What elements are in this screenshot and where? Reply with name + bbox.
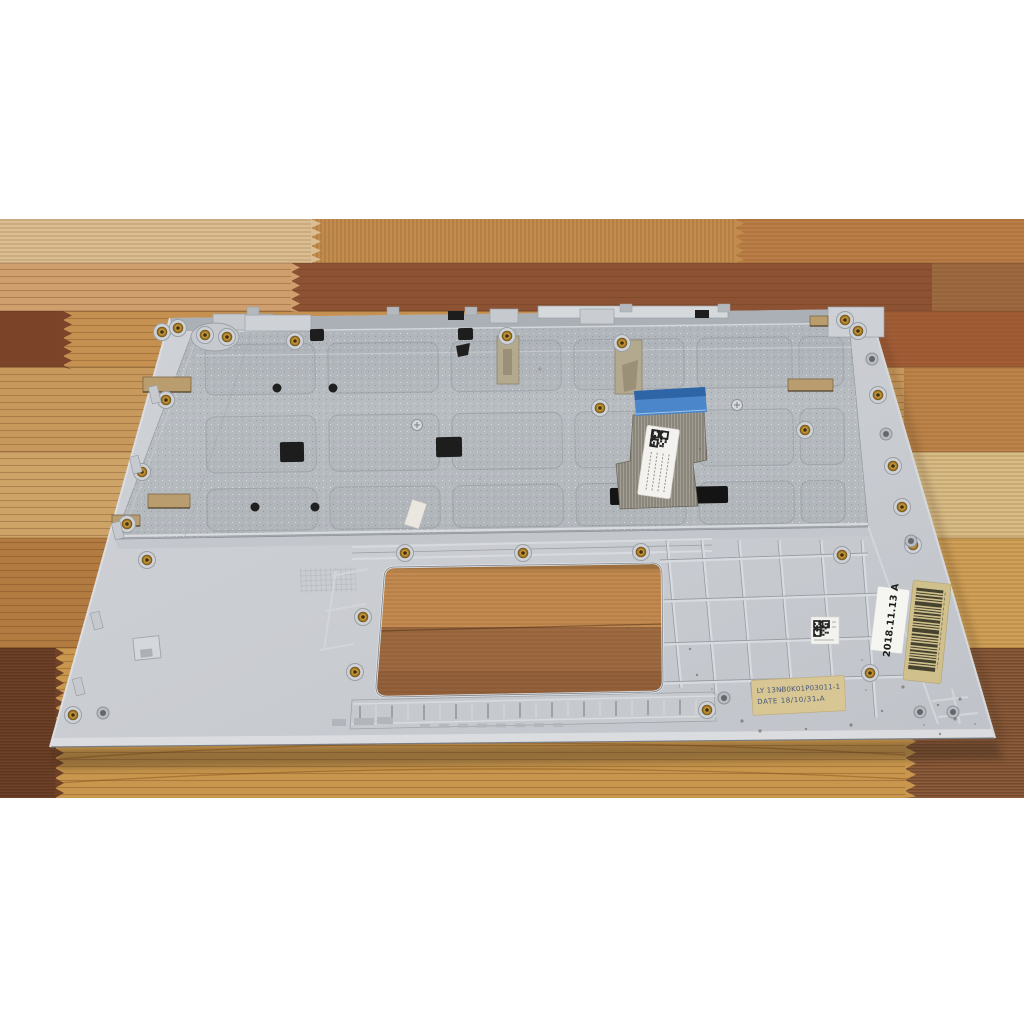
sticker-part-label: LY 13NB0K01P03011-1 DATE 18/10/31 A (751, 676, 846, 716)
touchpad-opening (370, 559, 670, 702)
photo-laptop-palmrest: 2018.11.13 A LY 13NB0K01P03011-1 DATE 18… (0, 219, 1024, 798)
sticker-qr (811, 617, 839, 644)
texture-patch (300, 567, 357, 593)
laptop-palmrest: 2018.11.13 A LY 13NB0K01P03011-1 DATE 18… (50, 304, 995, 747)
plastic-clip (133, 636, 161, 661)
page-canvas: 2018.11.13 A LY 13NB0K01P03011-1 DATE 18… (0, 0, 1024, 1024)
photo-svg: 2018.11.13 A LY 13NB0K01P03011-1 DATE 18… (0, 219, 1024, 798)
plate-grid (205, 336, 846, 531)
